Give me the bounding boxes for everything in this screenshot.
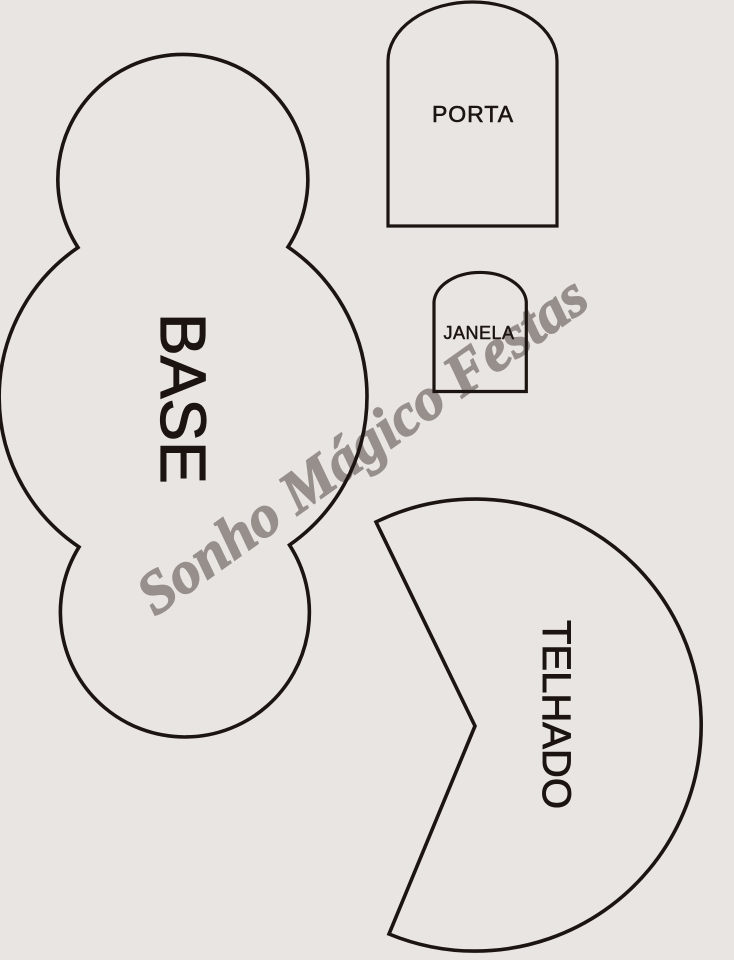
svg-text:TELHADO: TELHADO: [534, 620, 578, 809]
svg-text:JANELA: JANELA: [443, 323, 514, 343]
svg-text:PORTA: PORTA: [432, 101, 514, 127]
svg-text:BASE: BASE: [147, 313, 219, 484]
